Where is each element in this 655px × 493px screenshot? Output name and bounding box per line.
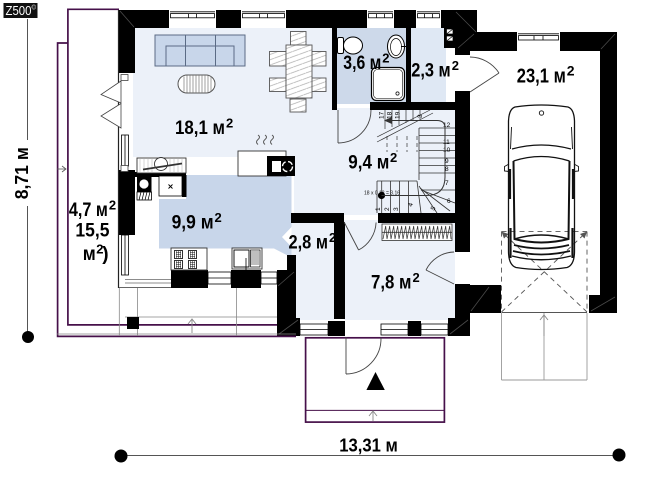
svg-text:2: 2	[413, 270, 420, 285]
svg-text:8: 8	[445, 166, 449, 173]
svg-text:): )	[102, 244, 108, 265]
svg-text:9,4 м: 9,4 м	[348, 153, 389, 174]
svg-text:2: 2	[109, 198, 116, 213]
svg-text:23,1 м: 23,1 м	[517, 66, 566, 88]
svg-text:3,6 м: 3,6 м	[343, 53, 381, 74]
svg-text:9: 9	[445, 158, 449, 165]
svg-text:2: 2	[329, 230, 336, 245]
svg-text:11: 11	[443, 139, 450, 146]
svg-text:2,8 м: 2,8 м	[289, 233, 329, 254]
svg-text:18: 18	[387, 111, 394, 119]
svg-text:2: 2	[382, 51, 389, 66]
svg-text:17: 17	[379, 111, 386, 119]
svg-text:2: 2	[215, 210, 222, 225]
svg-text:©: ©	[32, 5, 37, 12]
svg-text:7,8 м: 7,8 м	[371, 273, 412, 294]
svg-text:10: 10	[443, 147, 451, 154]
svg-text:2: 2	[452, 58, 459, 73]
svg-text:Z500: Z500	[6, 3, 32, 18]
svg-text:2: 2	[567, 63, 575, 79]
svg-text:6: 6	[447, 198, 451, 205]
svg-text:13,31 м: 13,31 м	[339, 435, 398, 455]
svg-text:2: 2	[384, 207, 391, 211]
svg-text:7: 7	[445, 180, 449, 187]
svg-text:2,3 м: 2,3 м	[411, 61, 451, 82]
svg-text:1: 1	[375, 207, 382, 211]
svg-text:2: 2	[226, 116, 233, 131]
svg-text:15,5: 15,5	[75, 220, 109, 241]
svg-text:19: 19	[395, 111, 402, 119]
svg-text:2: 2	[390, 150, 397, 165]
svg-text:8,71 м: 8,71 м	[12, 147, 32, 199]
svg-text:4,7 м: 4,7 м	[69, 200, 108, 221]
svg-text:9,9 м: 9,9 м	[172, 213, 214, 234]
svg-text:3: 3	[417, 114, 424, 118]
svg-text:18,1 м: 18,1 м	[175, 118, 225, 139]
svg-text:3: 3	[393, 207, 400, 211]
svg-text:м: м	[83, 244, 96, 265]
